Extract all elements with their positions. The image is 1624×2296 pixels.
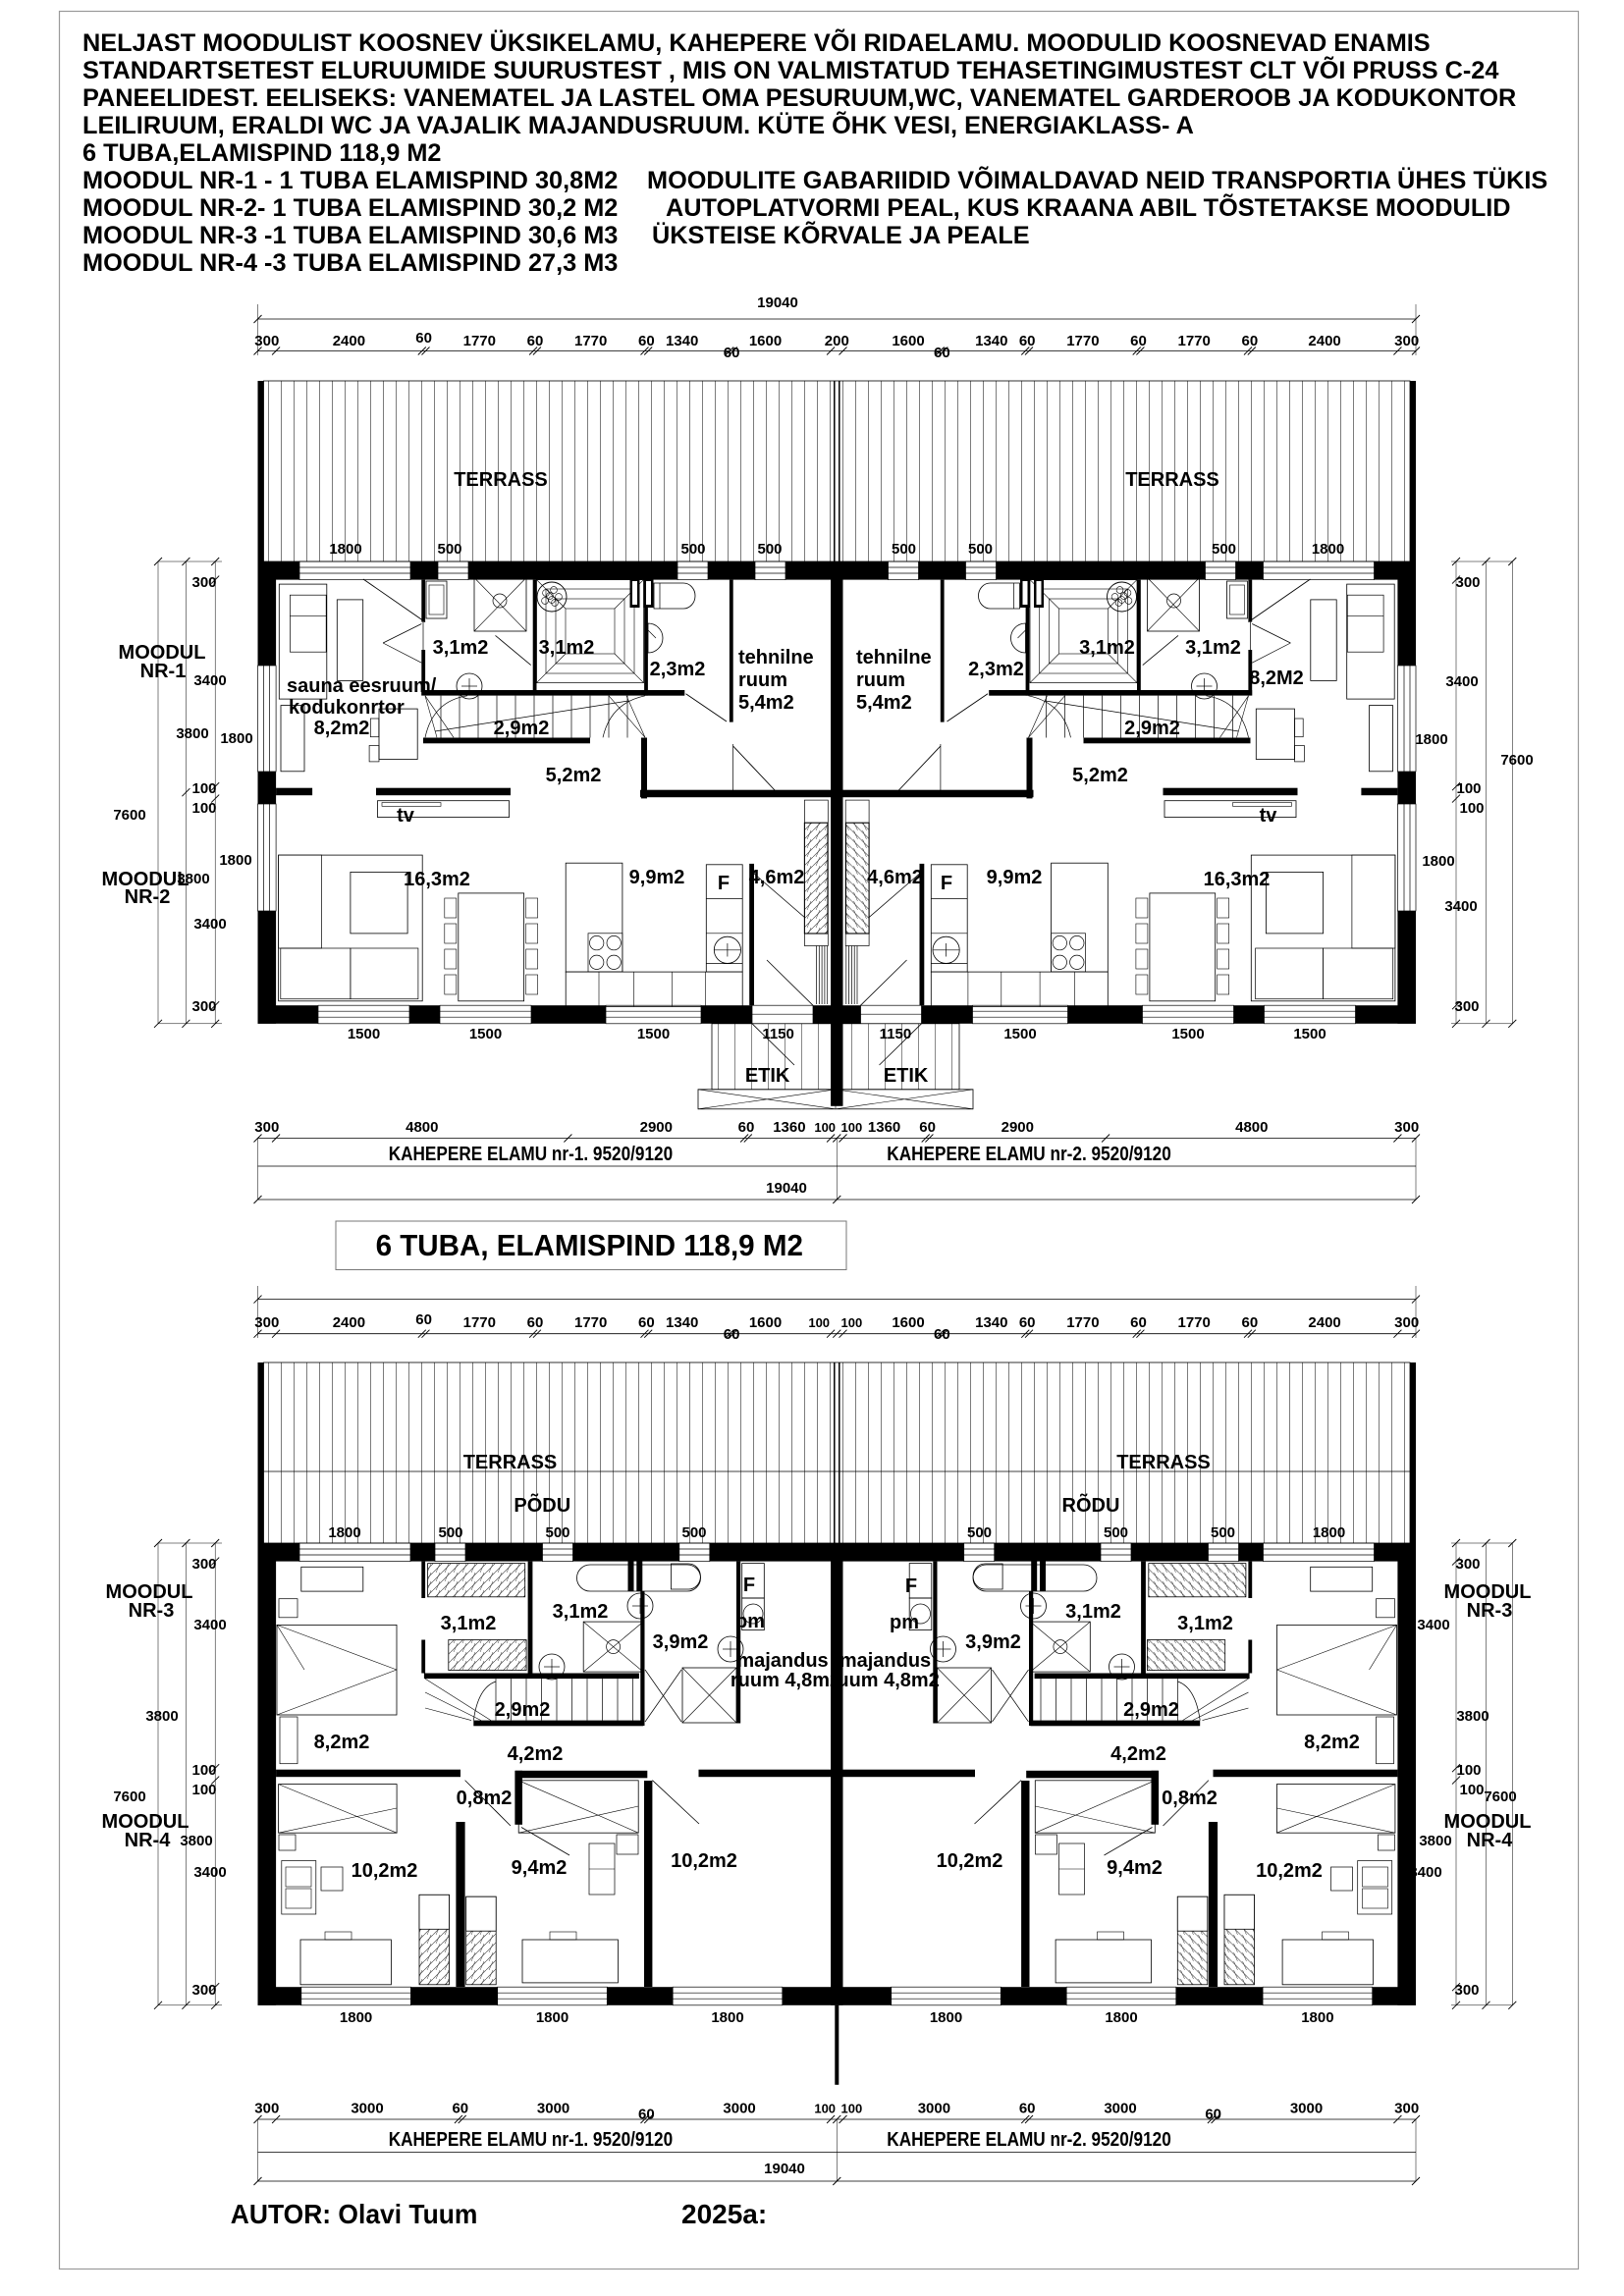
svg-text:PANEELIDEST. EELISEKS: VANEMAT: PANEELIDEST. EELISEKS: VANEMATEL JA LAST…	[82, 84, 1516, 112]
svg-text:4800: 4800	[406, 1119, 438, 1136]
svg-text:3,1m2: 3,1m2	[1079, 637, 1135, 659]
svg-text:1800: 1800	[930, 2009, 962, 2026]
svg-text:2900: 2900	[1001, 1119, 1034, 1136]
svg-text:300: 300	[254, 2101, 279, 2117]
svg-text:3800: 3800	[180, 1833, 212, 1849]
svg-text:5,4m2: 5,4m2	[738, 692, 794, 714]
svg-text:60: 60	[1019, 1314, 1036, 1331]
svg-text:3400: 3400	[1409, 1864, 1441, 1881]
svg-text:2400: 2400	[1308, 333, 1340, 349]
svg-text:100: 100	[814, 1120, 836, 1135]
svg-text:500: 500	[437, 541, 461, 558]
svg-text:1800: 1800	[1312, 541, 1344, 558]
svg-text:1800: 1800	[219, 852, 251, 869]
svg-text:4,6m2: 4,6m2	[867, 867, 923, 888]
svg-text:1800: 1800	[1422, 853, 1454, 870]
svg-text:1500: 1500	[1003, 1026, 1036, 1042]
svg-text:100: 100	[841, 1120, 863, 1135]
svg-text:NR-3: NR-3	[1467, 1600, 1513, 1622]
svg-text:300: 300	[1455, 574, 1480, 591]
svg-text:7600: 7600	[113, 1789, 145, 1805]
svg-text:60: 60	[724, 345, 740, 361]
svg-text:3400: 3400	[1445, 673, 1478, 690]
svg-text:200: 200	[825, 333, 849, 349]
svg-text:MOODUL NR-1 - 1 TUBA ELAMISPIN: MOODUL NR-1 - 1 TUBA ELAMISPIND 30,8M2	[82, 167, 618, 194]
svg-text:3,1m2: 3,1m2	[1185, 637, 1241, 659]
svg-text:500: 500	[1211, 1524, 1235, 1541]
svg-text:3400: 3400	[1444, 898, 1477, 915]
svg-text:60: 60	[1130, 1314, 1147, 1331]
svg-text:2,9m2: 2,9m2	[494, 718, 550, 739]
svg-text:9,9m2: 9,9m2	[987, 867, 1043, 888]
svg-text:60: 60	[1242, 1314, 1259, 1331]
svg-text:60: 60	[1242, 333, 1259, 349]
svg-text:500: 500	[680, 541, 705, 558]
svg-text:7600: 7600	[1484, 1789, 1516, 1805]
svg-text:100: 100	[841, 2102, 863, 2116]
svg-text:500: 500	[681, 1524, 706, 1541]
svg-text:NR-3: NR-3	[129, 1600, 175, 1622]
svg-text:ETIK: ETIK	[884, 1065, 929, 1087]
svg-text:2400: 2400	[333, 333, 365, 349]
svg-text:1360: 1360	[773, 1119, 805, 1136]
svg-text:500: 500	[892, 541, 916, 558]
svg-text:4,2m2: 4,2m2	[1110, 1743, 1166, 1765]
svg-text:3400: 3400	[193, 672, 226, 689]
svg-text:1800: 1800	[1105, 2009, 1137, 2026]
svg-text:9,4m2: 9,4m2	[1107, 1857, 1163, 1879]
svg-text:100: 100	[1459, 1782, 1484, 1798]
svg-text:3400: 3400	[1417, 1617, 1449, 1633]
svg-text:MOODUL NR-4 -3 TUBA ELAMISPIND: MOODUL NR-4 -3 TUBA ELAMISPIND 27,3 M3	[82, 249, 618, 277]
svg-text:1770: 1770	[1178, 1314, 1211, 1331]
svg-text:300: 300	[1394, 1314, 1419, 1331]
svg-text:1770: 1770	[1178, 333, 1211, 349]
svg-text:1800: 1800	[1313, 1524, 1345, 1541]
svg-text:9,9m2: 9,9m2	[629, 867, 685, 888]
svg-text:1500: 1500	[469, 1026, 502, 1042]
svg-text:NR-1: NR-1	[140, 661, 187, 682]
svg-text:pm: pm	[735, 1611, 765, 1632]
svg-text:NELJAST MOODULIST KOOSNEV ÜKSI: NELJAST MOODULIST KOOSNEV ÜKSIKELAMU, KA…	[82, 27, 1431, 57]
svg-text:ruum: ruum	[856, 669, 905, 691]
svg-text:2025a:: 2025a:	[681, 2199, 767, 2229]
svg-text:60: 60	[638, 333, 655, 349]
svg-text:60: 60	[415, 1311, 432, 1328]
svg-text:F: F	[743, 1575, 755, 1596]
svg-text:1800: 1800	[711, 2009, 743, 2026]
svg-text:60: 60	[1130, 333, 1147, 349]
svg-text:3,9m2: 3,9m2	[653, 1631, 709, 1653]
svg-text:majandus: majandus	[839, 1650, 931, 1672]
svg-text:2400: 2400	[1308, 1314, 1340, 1331]
svg-text:MOODUL NR-2- 1 TUBA ELAMISPIND: MOODUL NR-2- 1 TUBA ELAMISPIND 30,2 M2	[82, 194, 618, 222]
svg-text:1800: 1800	[340, 2009, 372, 2026]
svg-text:19040: 19040	[764, 2161, 805, 2177]
svg-text:7600: 7600	[113, 807, 145, 824]
svg-text:100: 100	[1456, 1762, 1481, 1779]
svg-text:10,2m2: 10,2m2	[352, 1860, 418, 1882]
svg-text:1500: 1500	[1171, 1026, 1204, 1042]
svg-text:tehnilne: tehnilne	[738, 647, 814, 668]
svg-text:2400: 2400	[333, 1314, 365, 1331]
svg-text:60: 60	[934, 345, 950, 361]
svg-text:ETIK: ETIK	[745, 1065, 790, 1087]
svg-text:60: 60	[724, 1326, 740, 1343]
svg-text:300: 300	[1394, 333, 1419, 349]
svg-text:500: 500	[545, 1524, 569, 1541]
svg-text:1600: 1600	[892, 1314, 924, 1331]
svg-text:8,2M2: 8,2M2	[1249, 667, 1304, 689]
svg-text:3800: 3800	[176, 725, 208, 742]
svg-text:tv: tv	[397, 805, 415, 827]
svg-text:AUTOR: Olavi Tuum: AUTOR: Olavi Tuum	[231, 2199, 478, 2229]
svg-text:1150: 1150	[880, 1026, 912, 1042]
svg-text:1770: 1770	[1066, 1314, 1099, 1331]
svg-text:F: F	[905, 1575, 917, 1597]
svg-text:60: 60	[452, 2101, 468, 2117]
svg-text:TERRASS: TERRASS	[1116, 1452, 1211, 1473]
svg-text:2,3m2: 2,3m2	[650, 659, 706, 680]
svg-text:3400: 3400	[193, 916, 226, 933]
svg-text:1800: 1800	[536, 2009, 568, 2026]
svg-text:2,9m2: 2,9m2	[1123, 1699, 1179, 1721]
svg-text:100: 100	[814, 2102, 836, 2116]
svg-text:100: 100	[191, 780, 216, 797]
svg-text:3,1m2: 3,1m2	[441, 1613, 497, 1634]
svg-text:1770: 1770	[574, 1314, 607, 1331]
svg-text:3800: 3800	[1456, 1708, 1489, 1725]
svg-text:TERRASS: TERRASS	[454, 469, 548, 491]
svg-text:3400: 3400	[193, 1617, 226, 1633]
svg-text:1800: 1800	[1415, 731, 1447, 748]
svg-text:1770: 1770	[574, 333, 607, 349]
svg-text:KAHEPERE ELAMU nr-2. 9520/912: KAHEPERE ELAMU nr-2. 9520/9120	[887, 2129, 1171, 2151]
svg-text:3,1m2: 3,1m2	[1065, 1601, 1121, 1623]
svg-text:60: 60	[415, 330, 432, 347]
svg-text:3000: 3000	[918, 2101, 950, 2117]
svg-text:300: 300	[254, 1314, 279, 1331]
svg-text:60: 60	[919, 1119, 936, 1136]
svg-text:500: 500	[1104, 1524, 1128, 1541]
svg-text:3,1m2: 3,1m2	[553, 1601, 609, 1623]
svg-text:3,9m2: 3,9m2	[965, 1631, 1021, 1653]
svg-text:100: 100	[191, 1762, 216, 1779]
svg-text:19040: 19040	[757, 294, 798, 311]
svg-text:500: 500	[968, 541, 993, 558]
svg-text:1770: 1770	[463, 333, 496, 349]
svg-text:F: F	[718, 873, 730, 894]
svg-text:TERRASS: TERRASS	[463, 1452, 558, 1473]
svg-text:1500: 1500	[1293, 1026, 1326, 1042]
svg-text:1800: 1800	[329, 541, 361, 558]
svg-text:60: 60	[638, 2107, 655, 2123]
svg-text:4,6m2: 4,6m2	[749, 867, 805, 888]
svg-text:3000: 3000	[1104, 2101, 1136, 2117]
svg-text:3000: 3000	[351, 2101, 383, 2117]
svg-text:STANDARTSETEST ELURUUMIDE SUUR: STANDARTSETEST ELURUUMIDE SUURUSTEST , M…	[82, 55, 1498, 84]
svg-text:1500: 1500	[348, 1026, 380, 1042]
svg-text:NR-4: NR-4	[125, 1830, 172, 1851]
svg-text:KAHEPERE ELAMU nr-1. 9520/912: KAHEPERE ELAMU nr-1. 9520/9120	[389, 1144, 674, 1165]
svg-text:16,3m2: 16,3m2	[1204, 869, 1271, 890]
svg-text:NR-4: NR-4	[1467, 1830, 1514, 1851]
svg-text:19040: 19040	[766, 1180, 807, 1197]
svg-text:60: 60	[527, 1314, 544, 1331]
svg-text:PÕDU: PÕDU	[514, 1493, 570, 1517]
svg-text:100: 100	[191, 800, 216, 817]
svg-text:NR-2: NR-2	[125, 886, 171, 908]
svg-text:500: 500	[967, 1524, 992, 1541]
svg-text:300: 300	[254, 333, 279, 349]
svg-text:10,2m2: 10,2m2	[1256, 1860, 1323, 1882]
svg-text:2,9m2: 2,9m2	[1124, 718, 1180, 739]
svg-text:60: 60	[1019, 2101, 1036, 2117]
svg-text:300: 300	[191, 1982, 216, 1999]
svg-text:6 TUBA, ELAMISPIND 118,9 M2: 6 TUBA, ELAMISPIND 118,9 M2	[376, 1228, 803, 1262]
svg-text:8,2m2: 8,2m2	[1304, 1732, 1360, 1753]
svg-text:300: 300	[191, 1556, 216, 1573]
svg-text:tv: tv	[1260, 805, 1278, 827]
svg-text:MOODUL NR-3 -1 TUBA ELAMISPIND: MOODUL NR-3 -1 TUBA ELAMISPIND 30,6 M3	[82, 222, 618, 249]
svg-text:2900: 2900	[640, 1119, 673, 1136]
svg-text:100: 100	[808, 1315, 830, 1330]
svg-text:ruum 4,8m2: ruum 4,8m2	[731, 1670, 840, 1691]
svg-text:3800: 3800	[145, 1708, 178, 1725]
svg-text:3400: 3400	[193, 1864, 226, 1881]
svg-text:60: 60	[638, 1314, 655, 1331]
svg-text:3000: 3000	[723, 2101, 755, 2117]
svg-text:RÕDU: RÕDU	[1062, 1493, 1120, 1517]
svg-text:AUTOPLATVORMI PEAL, KUS KRAANA: AUTOPLATVORMI PEAL, KUS KRAANA ABIL TÕST…	[666, 192, 1511, 222]
svg-text:KAHEPERE ELAMU nr-1. 9520/912: KAHEPERE ELAMU nr-1. 9520/9120	[389, 2129, 674, 2151]
svg-text:F: F	[941, 873, 952, 894]
svg-text:1340: 1340	[975, 333, 1007, 349]
svg-text:6 TUBA,ELAMISPIND 118,9 M2: 6 TUBA,ELAMISPIND 118,9 M2	[82, 139, 442, 167]
svg-text:500: 500	[1212, 541, 1236, 558]
svg-text:300: 300	[1454, 1982, 1479, 1999]
svg-text:60: 60	[1205, 2107, 1221, 2123]
svg-text:1360: 1360	[868, 1119, 900, 1136]
svg-text:3,1m2: 3,1m2	[539, 637, 595, 659]
svg-text:5,4m2: 5,4m2	[856, 692, 912, 714]
svg-text:3,1m2: 3,1m2	[1177, 1613, 1233, 1634]
svg-text:3,1m2: 3,1m2	[433, 637, 489, 659]
svg-text:LEILIRUUM, ERALDI WC JA VAJALI: LEILIRUUM, ERALDI WC JA VAJALIK MAJANDUS…	[82, 110, 1194, 139]
svg-text:1340: 1340	[666, 333, 698, 349]
svg-text:MOODULITE GABARIIDID VÕIMALDAV: MOODULITE GABARIIDID VÕIMALDAVAD NEID TR…	[647, 165, 1547, 194]
svg-text:sauna eesruum/: sauna eesruum/	[287, 675, 437, 697]
svg-text:10,2m2: 10,2m2	[937, 1850, 1003, 1872]
svg-text:4,2m2: 4,2m2	[508, 1743, 564, 1765]
svg-text:1800: 1800	[220, 730, 252, 747]
svg-text:500: 500	[438, 1524, 462, 1541]
svg-text:500: 500	[757, 541, 782, 558]
svg-text:8,2m2: 8,2m2	[314, 718, 370, 739]
svg-text:60: 60	[738, 1119, 755, 1136]
svg-text:100: 100	[1456, 780, 1481, 797]
svg-text:1500: 1500	[637, 1026, 670, 1042]
svg-text:1770: 1770	[463, 1314, 496, 1331]
svg-text:3000: 3000	[537, 2101, 569, 2117]
svg-text:300: 300	[254, 1119, 279, 1136]
svg-text:3000: 3000	[1290, 2101, 1323, 2117]
svg-text:pm: pm	[890, 1612, 919, 1633]
svg-text:1600: 1600	[749, 333, 782, 349]
svg-text:majandus: majandus	[736, 1650, 828, 1672]
svg-text:3800: 3800	[1419, 1833, 1451, 1849]
svg-text:2,9m2: 2,9m2	[495, 1699, 551, 1721]
svg-text:8,2m2: 8,2m2	[314, 1732, 370, 1753]
svg-text:16,3m2: 16,3m2	[404, 869, 470, 890]
svg-text:1600: 1600	[749, 1314, 782, 1331]
svg-text:60: 60	[527, 333, 544, 349]
svg-text:100: 100	[1459, 800, 1484, 817]
svg-text:ruum 4,8m2: ruum 4,8m2	[830, 1670, 940, 1691]
svg-text:1340: 1340	[975, 1314, 1007, 1331]
svg-text:60: 60	[934, 1326, 950, 1343]
svg-text:100: 100	[841, 1315, 863, 1330]
svg-text:tehnilne: tehnilne	[856, 647, 932, 668]
svg-text:1800: 1800	[1301, 2009, 1333, 2026]
svg-text:10,2m2: 10,2m2	[671, 1850, 737, 1872]
svg-text:300: 300	[1455, 1556, 1480, 1573]
svg-text:300: 300	[191, 998, 216, 1015]
svg-text:0,8m2: 0,8m2	[1162, 1788, 1218, 1809]
svg-text:ÜKSTEISE KÕRVALE JA PEALE: ÜKSTEISE KÕRVALE JA PEALE	[652, 220, 1030, 249]
svg-text:KAHEPERE ELAMU nr-2. 9520/912: KAHEPERE ELAMU nr-2. 9520/9120	[887, 1144, 1171, 1165]
svg-text:1150: 1150	[762, 1026, 794, 1042]
svg-text:300: 300	[191, 574, 216, 591]
svg-text:300: 300	[1394, 1119, 1419, 1136]
svg-text:100: 100	[191, 1782, 216, 1798]
svg-text:1600: 1600	[892, 333, 924, 349]
svg-text:kodukonrtor: kodukonrtor	[289, 697, 405, 719]
svg-text:TERRASS: TERRASS	[1125, 469, 1219, 491]
svg-text:5,2m2: 5,2m2	[546, 765, 602, 786]
svg-text:1770: 1770	[1066, 333, 1099, 349]
svg-text:300: 300	[1394, 2101, 1419, 2117]
svg-text:ruum: ruum	[738, 669, 787, 691]
svg-text:1340: 1340	[666, 1314, 698, 1331]
svg-text:9,4m2: 9,4m2	[512, 1857, 568, 1879]
svg-text:1800: 1800	[328, 1524, 360, 1541]
svg-text:2,3m2: 2,3m2	[968, 659, 1024, 680]
svg-text:4800: 4800	[1235, 1119, 1268, 1136]
svg-text:7600: 7600	[1500, 752, 1533, 769]
svg-text:5,2m2: 5,2m2	[1072, 765, 1128, 786]
svg-text:60: 60	[1019, 333, 1036, 349]
svg-text:0,8m2: 0,8m2	[457, 1788, 513, 1809]
svg-text:300: 300	[1454, 998, 1479, 1015]
